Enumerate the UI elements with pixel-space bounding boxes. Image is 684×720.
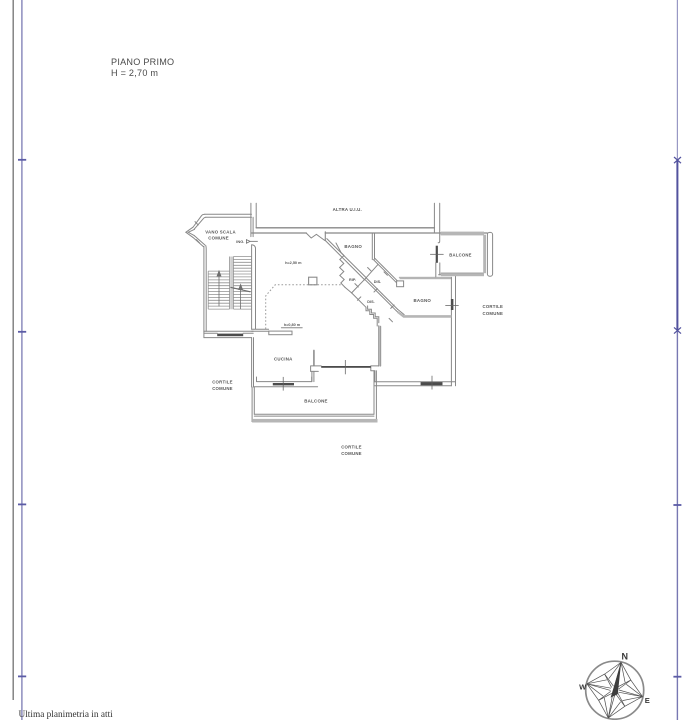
svg-text:N: N (621, 652, 628, 662)
svg-text:h=0,80 m: h=0,80 m (284, 323, 301, 327)
svg-text:BALCONE: BALCONE (449, 253, 471, 258)
svg-text:COMUNE: COMUNE (482, 311, 503, 316)
svg-text:E: E (645, 696, 650, 705)
svg-text:BALCONE: BALCONE (304, 399, 327, 404)
svg-text:DIS.: DIS. (374, 280, 381, 284)
svg-text:BAGNO: BAGNO (414, 298, 432, 303)
svg-text:ING.: ING. (236, 239, 244, 244)
svg-text:COMUNE: COMUNE (212, 386, 233, 391)
svg-text:CORTILE: CORTILE (212, 379, 233, 384)
svg-text:RIP.: RIP. (349, 278, 356, 282)
svg-text:W: W (579, 682, 587, 691)
svg-text:VANO SCALA: VANO SCALA (205, 230, 236, 235)
svg-text:BAGNO: BAGNO (344, 244, 362, 249)
svg-text:h=2,50 m: h=2,50 m (285, 261, 302, 265)
svg-text:CORTILE: CORTILE (341, 445, 362, 450)
svg-text:DIS.: DIS. (367, 300, 374, 304)
svg-text:ALTRA U.I.U.: ALTRA U.I.U. (333, 207, 362, 212)
svg-text:COMUNE: COMUNE (208, 236, 229, 241)
svg-text:CUCINA: CUCINA (274, 357, 293, 362)
svg-text:CORTILE: CORTILE (482, 304, 503, 309)
svg-text:COMUNE: COMUNE (341, 451, 362, 456)
